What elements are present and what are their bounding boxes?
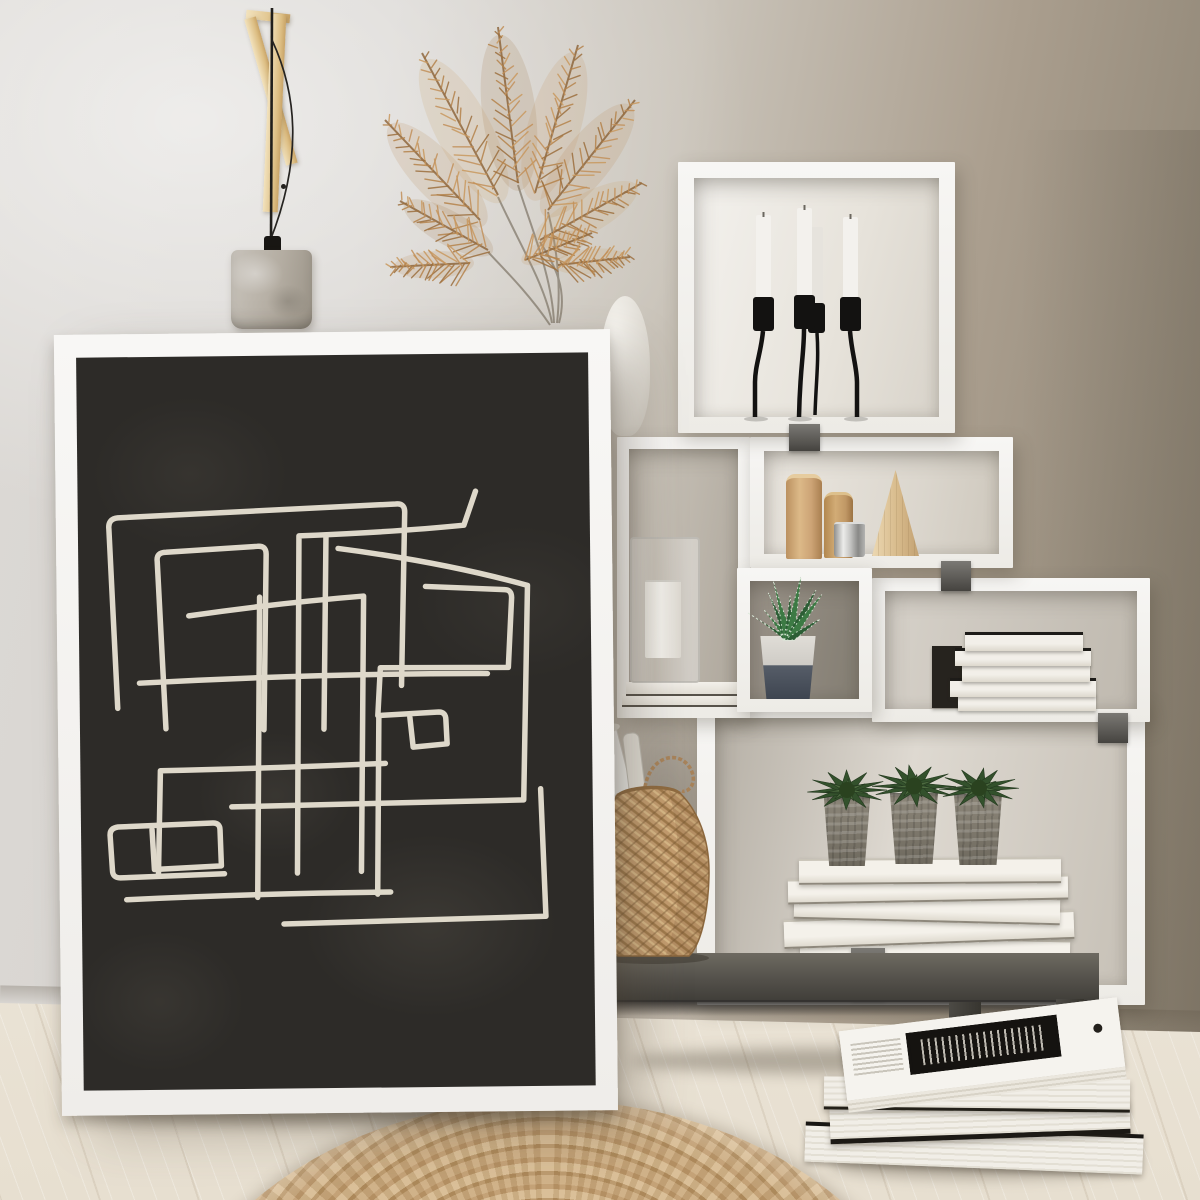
hurricane-candle-holder bbox=[630, 537, 700, 683]
candelabra-holders bbox=[753, 295, 861, 333]
book-cover-logo-dot bbox=[1093, 1023, 1103, 1033]
wood-cylinder-tall bbox=[786, 474, 822, 559]
book-cover-text bbox=[850, 1038, 904, 1078]
floor-book-stack bbox=[800, 1022, 1170, 1192]
shelf-clip bbox=[1098, 713, 1128, 743]
shelf-clip bbox=[941, 561, 971, 591]
lamp-cord bbox=[248, 8, 318, 248]
line-art-maze bbox=[76, 352, 596, 1090]
framed-poster bbox=[54, 329, 618, 1116]
steel-canister bbox=[834, 522, 865, 557]
haworthia-plant bbox=[737, 560, 841, 646]
candle-shadows bbox=[744, 417, 868, 422]
pillar-candle bbox=[645, 580, 681, 658]
pampas-grass bbox=[330, 5, 660, 350]
book-cover-black-panel bbox=[906, 1015, 1062, 1075]
concrete-lamp-shade bbox=[231, 250, 312, 329]
pampas-plumes bbox=[373, 27, 650, 286]
interior-scene bbox=[0, 0, 1200, 1200]
shelf-clip bbox=[789, 424, 820, 451]
candelabra-stems bbox=[755, 329, 857, 417]
poster-artwork bbox=[76, 352, 596, 1090]
book-cover-panel-lines bbox=[920, 1024, 1046, 1065]
candelabra bbox=[742, 203, 868, 429]
succulent-rosettes bbox=[780, 740, 1080, 880]
taper-candles bbox=[756, 205, 858, 309]
book bbox=[965, 632, 1083, 651]
white-book bbox=[626, 682, 742, 696]
